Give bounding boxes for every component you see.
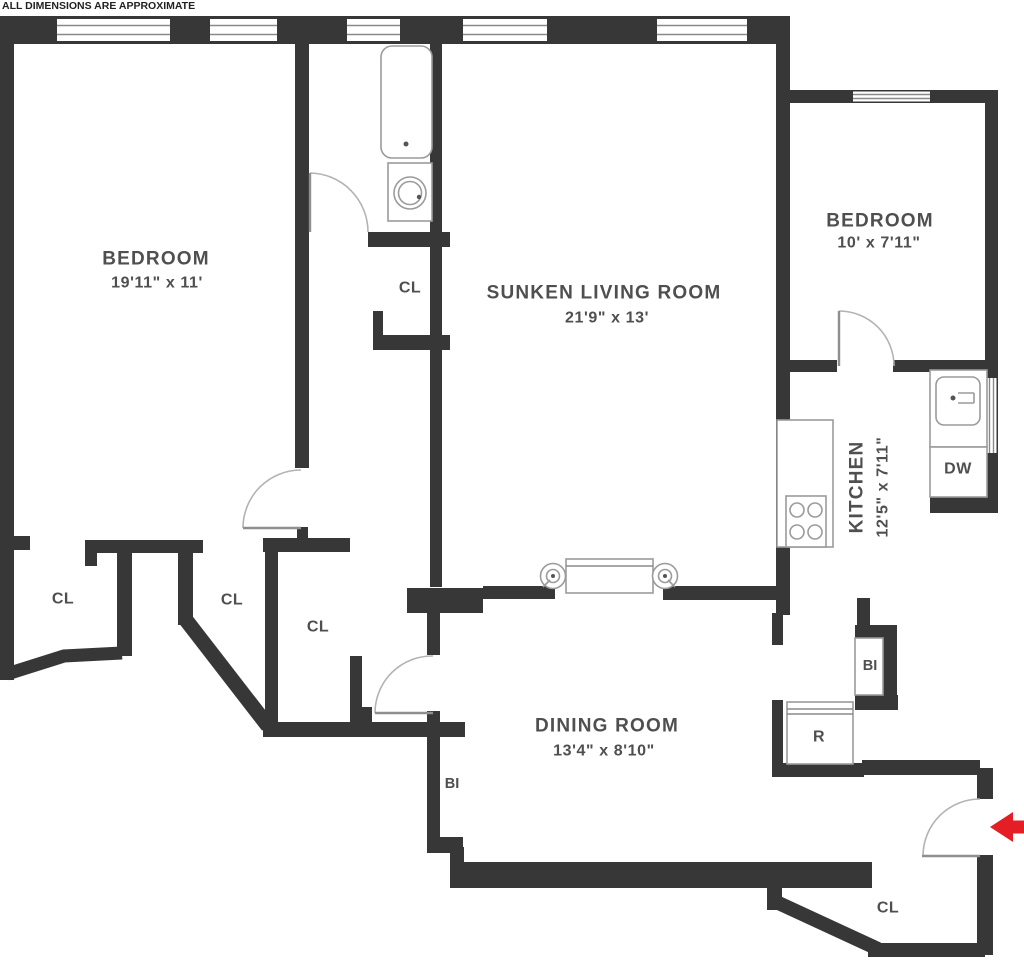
volute-right [653, 564, 678, 589]
room-name: BEDROOM [102, 249, 210, 270]
room-name: DINING ROOM [535, 716, 679, 737]
closet-label: CL [221, 592, 243, 609]
stove [786, 496, 826, 547]
sunken-step [541, 559, 678, 593]
window [347, 19, 400, 41]
bedroom-left-door [243, 470, 301, 528]
room-label-kitchen: KITCHEN 12'5" x 7'11" [847, 437, 892, 538]
room-name: KITCHEN [847, 441, 868, 534]
room-dims: 19'11" x 11' [111, 275, 203, 292]
entry-door [922, 799, 980, 856]
room-label-bedroom-right: BEDROOM 10' x 7'11" [826, 211, 934, 252]
room-label-bedroom-left: BEDROOM 19'11" x 11' [102, 249, 210, 292]
window [657, 19, 747, 41]
built-in-label: BI [863, 658, 878, 674]
room-dims: 12'5" x 7'11" [875, 437, 892, 538]
built-in-label: BI [445, 776, 460, 792]
room-dims: 13'4" x 8'10" [553, 743, 655, 760]
refrigerator: R [787, 702, 853, 764]
window [463, 19, 547, 41]
refrigerator-label: R [813, 729, 825, 746]
closet-label: CL [307, 619, 329, 636]
bathroom-door [310, 173, 368, 232]
room-name: SUNKEN LIVING ROOM [487, 283, 722, 304]
window [853, 92, 930, 102]
floor-plan-page: DW R [0, 0, 1024, 970]
closet-label: CL [399, 280, 421, 297]
closet-label: CL [877, 900, 899, 917]
entry-arrow-icon [990, 812, 1024, 842]
window [57, 19, 170, 41]
floor-plan-canvas: DW R [0, 0, 1024, 970]
room-label-dining-room: DINING ROOM 13'4" x 8'10" [535, 716, 679, 760]
room-name: BEDROOM [826, 211, 934, 232]
kitchen-sink [936, 377, 980, 425]
window [987, 378, 997, 453]
closet-label: CL [52, 591, 74, 608]
bedroom-right-door [839, 311, 894, 366]
room-dims: 21'9" x 13' [565, 310, 649, 327]
room-dims: 10' x 7'11" [837, 235, 920, 252]
hallway-dining-door [375, 656, 433, 713]
volute-left [541, 564, 566, 589]
bathroom-sink [388, 163, 432, 221]
disclaimer-text: ALL DIMENSIONS ARE APPROXIMATE [2, 0, 195, 12]
window [210, 19, 277, 41]
dishwasher-label: DW [944, 461, 972, 478]
dishwasher: DW [930, 447, 987, 497]
bathtub [381, 46, 432, 158]
room-label-living-room: SUNKEN LIVING ROOM 21'9" x 13' [487, 283, 722, 327]
